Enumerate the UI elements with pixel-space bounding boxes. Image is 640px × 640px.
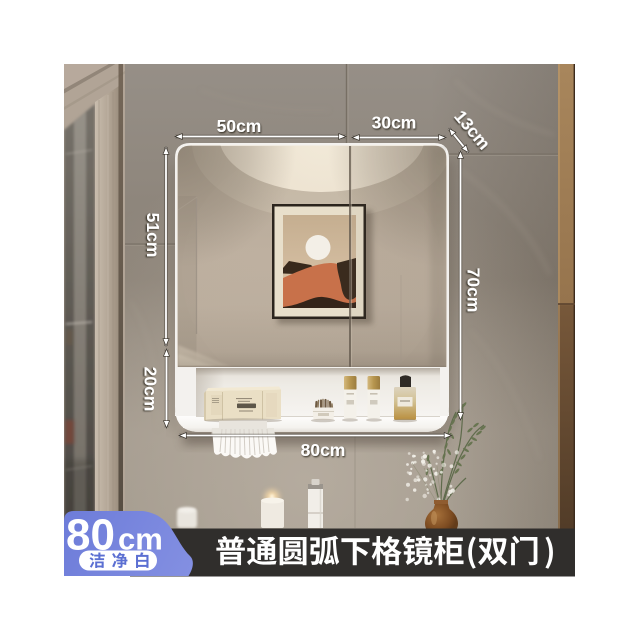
- svg-text:30cm: 30cm: [372, 113, 417, 133]
- svg-text:20cm: 20cm: [141, 367, 161, 412]
- svg-text:70cm: 70cm: [464, 268, 484, 313]
- svg-text:51cm: 51cm: [143, 213, 163, 258]
- svg-text:80cm: 80cm: [301, 440, 346, 460]
- svg-text:50cm: 50cm: [217, 116, 262, 136]
